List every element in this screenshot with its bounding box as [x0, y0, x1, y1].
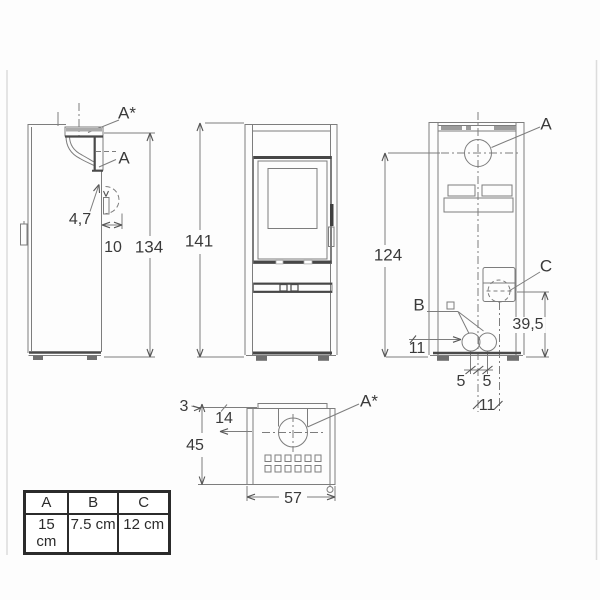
front-foot: [256, 356, 267, 361]
side-outlet-stub: [104, 198, 110, 215]
side-body-outline: [28, 124, 102, 356]
rear-top-hatch: [466, 126, 471, 130]
legend-value-b: 7.5 cm: [67, 515, 118, 552]
side-dim-pipe-offset: 10: [104, 240, 122, 256]
rear-leader-lines: [427, 127, 540, 334]
legend-header-c: C: [117, 493, 168, 513]
side-hidden-pipe-arc: [96, 152, 119, 214]
legend-header-a: A: [26, 493, 67, 513]
legend-value-c: 12 cm: [117, 515, 168, 552]
rear-centerlines: [441, 112, 520, 412]
stove-dimension-diagram: A* A 4,7 10 134 141 124 A C B 39,5 11 5 …: [0, 0, 600, 600]
front-door-frame: [254, 157, 332, 264]
top-vent-holes: [265, 455, 321, 472]
top-label-top-outlet: A*: [360, 393, 378, 410]
rear-dim-b-offset-left: 5: [457, 374, 466, 390]
front-foot: [318, 356, 329, 361]
rear-dim-b-height: 11: [409, 341, 426, 357]
side-foot: [87, 356, 97, 361]
front-view-drawing: [197, 123, 337, 361]
side-plate-hatch: [66, 128, 102, 132]
front-dim-height: 141: [183, 233, 215, 250]
side-view-drawing: [21, 103, 156, 360]
rear-connection-box-c: [483, 268, 515, 302]
side-bracket-curves: [66, 136, 94, 166]
front-door-glass: [268, 169, 317, 229]
legend-value-row: 15 cm 7.5 cm 12 cm: [26, 515, 168, 552]
side-foot: [33, 356, 43, 361]
rear-inlet-circle-b: [462, 333, 480, 351]
side-door-handle: [21, 224, 28, 245]
rear-label-connection-b: B: [413, 297, 424, 314]
front-air-knob: [280, 285, 287, 292]
rear-small-opening: [447, 302, 454, 309]
side-label-top-outlet: A*: [118, 105, 136, 122]
rear-top-hatch: [441, 126, 462, 130]
front-hinge-notch: [276, 260, 283, 264]
rear-dim-flue-height: 124: [372, 247, 404, 264]
rear-inlet-circle-b: [479, 333, 497, 351]
rear-label-connection-c: C: [540, 258, 552, 275]
rear-foot: [507, 356, 519, 361]
rear-foot: [437, 356, 449, 361]
side-label-rear-outlet: A: [118, 150, 129, 167]
dimension-legend-table: A B C 15 cm 7.5 cm 12 cm: [23, 490, 171, 555]
front-hinge-notch: [304, 260, 312, 264]
rear-dimension-arrows: [382, 153, 548, 409]
rear-top-hatch: [494, 126, 516, 130]
legend-value-a: 15 cm: [26, 515, 67, 552]
rear-label-flue: A: [540, 116, 551, 133]
top-dim-depth: 45: [184, 438, 206, 454]
top-heat-shield: [258, 404, 327, 409]
side-dimension-lines: [58, 112, 155, 357]
top-dim-shield-gap: 3: [180, 399, 189, 415]
rear-vent-slot: [448, 185, 475, 196]
top-probe-dot: [327, 487, 333, 493]
side-dim-pipe-gap: 4,7: [69, 212, 91, 228]
side-dim-height: 134: [133, 239, 165, 256]
legend-header-b: B: [67, 493, 118, 513]
top-dim-flue-offset: 14: [215, 411, 233, 427]
front-door-handle-bar: [330, 204, 334, 226]
legend-header-row: A B C: [26, 493, 168, 515]
rear-view-drawing: [382, 112, 549, 412]
front-air-knob: [291, 285, 298, 292]
top-centerlines: [262, 414, 326, 452]
rear-dim-c-offset: 11: [479, 398, 496, 414]
top-dim-width: 57: [282, 491, 304, 507]
rear-dim-b-offset-right: 5: [483, 374, 492, 390]
rear-vent-slot: [482, 185, 512, 196]
rear-dim-c-height: 39,5: [510, 317, 545, 333]
